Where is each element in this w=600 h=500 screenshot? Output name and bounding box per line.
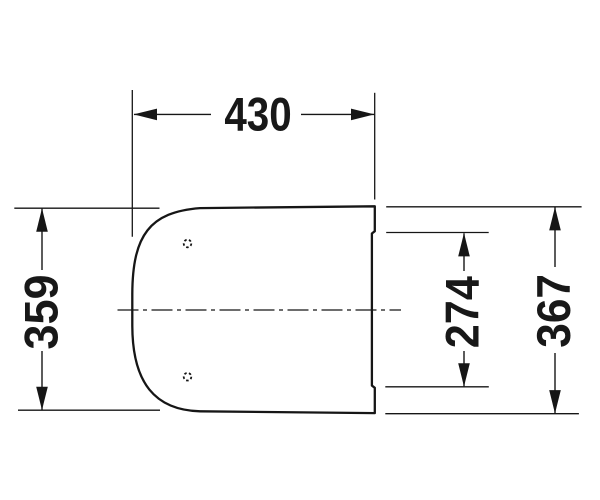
svg-text:274: 274 [435,275,488,348]
svg-text:367: 367 [526,274,580,348]
svg-text:359: 359 [14,274,67,349]
svg-text:430: 430 [224,89,291,142]
